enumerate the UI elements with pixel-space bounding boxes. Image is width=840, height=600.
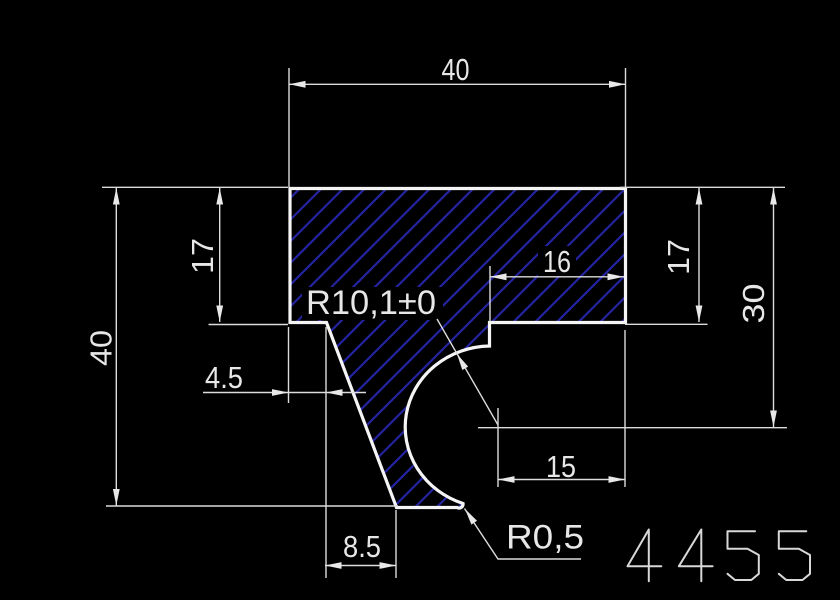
svg-text:R0,5: R0,5 <box>506 519 584 557</box>
svg-text:8.5: 8.5 <box>343 529 381 564</box>
svg-text:17: 17 <box>661 239 696 275</box>
svg-text:30: 30 <box>736 284 771 324</box>
svg-text:16: 16 <box>543 244 571 279</box>
svg-text:40: 40 <box>83 330 118 366</box>
svg-text:15: 15 <box>546 449 576 484</box>
svg-text:4.5: 4.5 <box>205 360 243 395</box>
svg-text:R10,1±0: R10,1±0 <box>306 284 436 322</box>
svg-text:40: 40 <box>442 52 470 87</box>
svg-text:17: 17 <box>185 238 220 274</box>
